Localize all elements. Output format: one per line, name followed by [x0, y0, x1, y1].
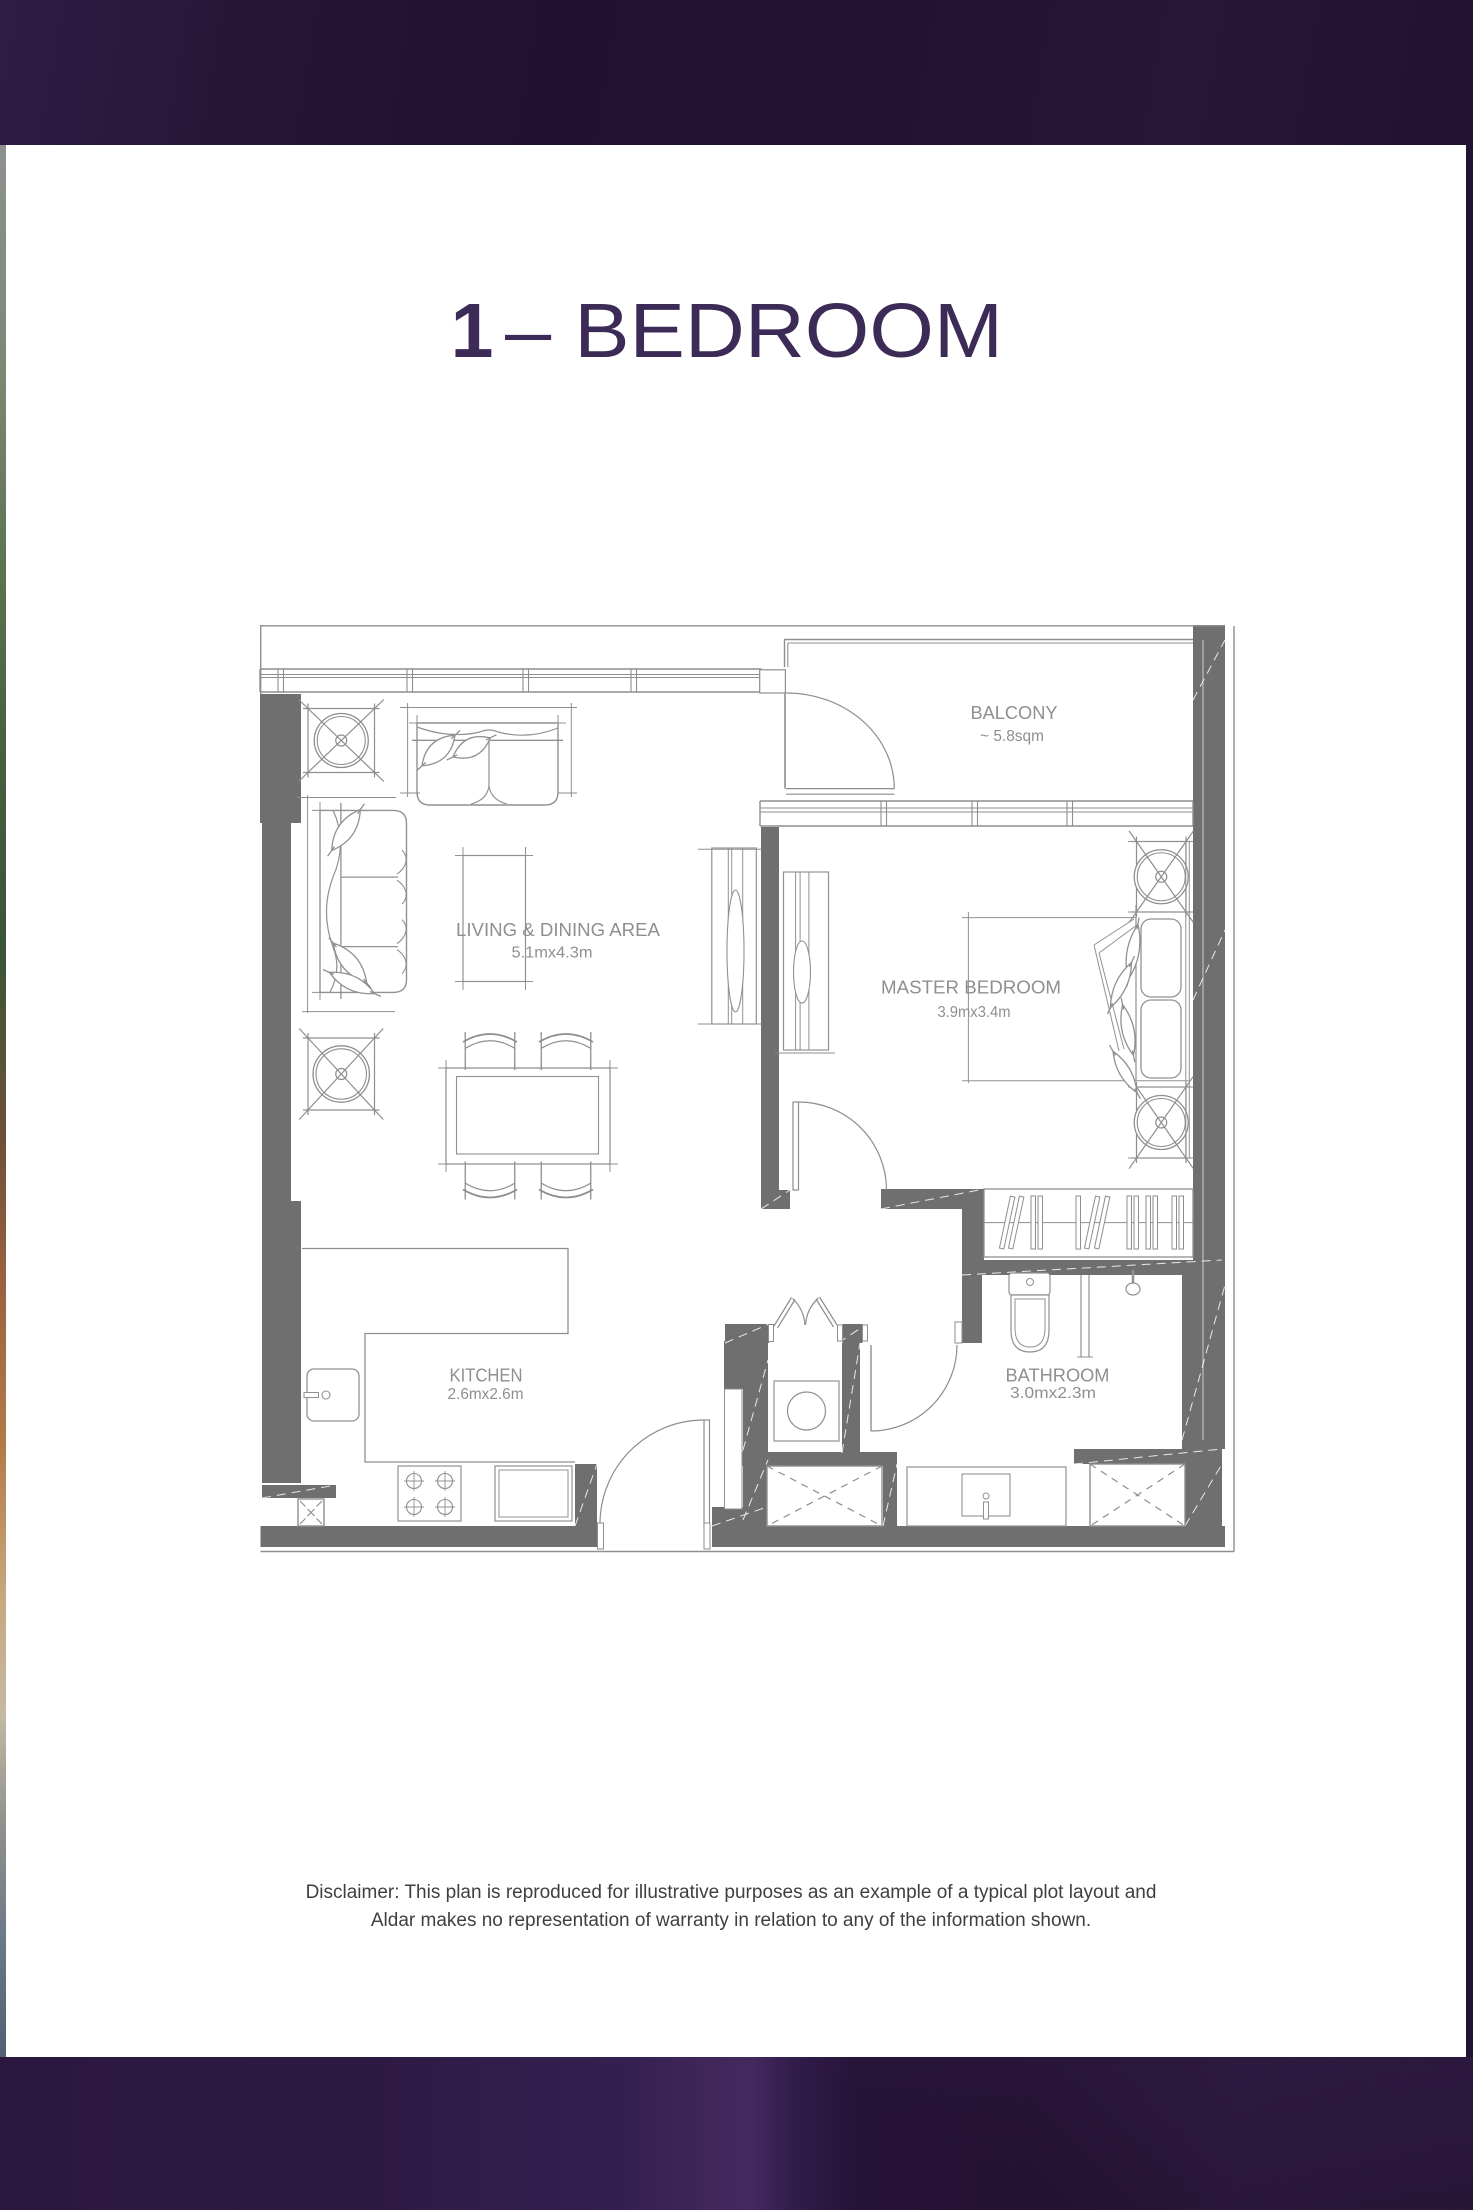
- svg-text:5.1mx4.3m: 5.1mx4.3m: [512, 945, 593, 962]
- svg-text:1: 1: [451, 288, 494, 374]
- svg-text:~ 5.8sqm: ~ 5.8sqm: [980, 728, 1044, 745]
- svg-text:LIVING & DINING AREA: LIVING & DINING AREA: [456, 920, 660, 940]
- svg-text:BALCONY: BALCONY: [971, 703, 1058, 723]
- svg-text:MASTER BEDROOM: MASTER BEDROOM: [881, 978, 1061, 998]
- svg-text:BATHROOM: BATHROOM: [1006, 1365, 1110, 1385]
- svg-text:3.9mx3.4m: 3.9mx3.4m: [938, 1004, 1011, 1021]
- svg-text:2.6mx2.6m: 2.6mx2.6m: [448, 1386, 524, 1403]
- svg-text:– BEDROOM: – BEDROOM: [505, 288, 1003, 374]
- svg-text:3.0mx2.3m: 3.0mx2.3m: [1010, 1385, 1096, 1402]
- svg-text:KITCHEN: KITCHEN: [450, 1365, 523, 1385]
